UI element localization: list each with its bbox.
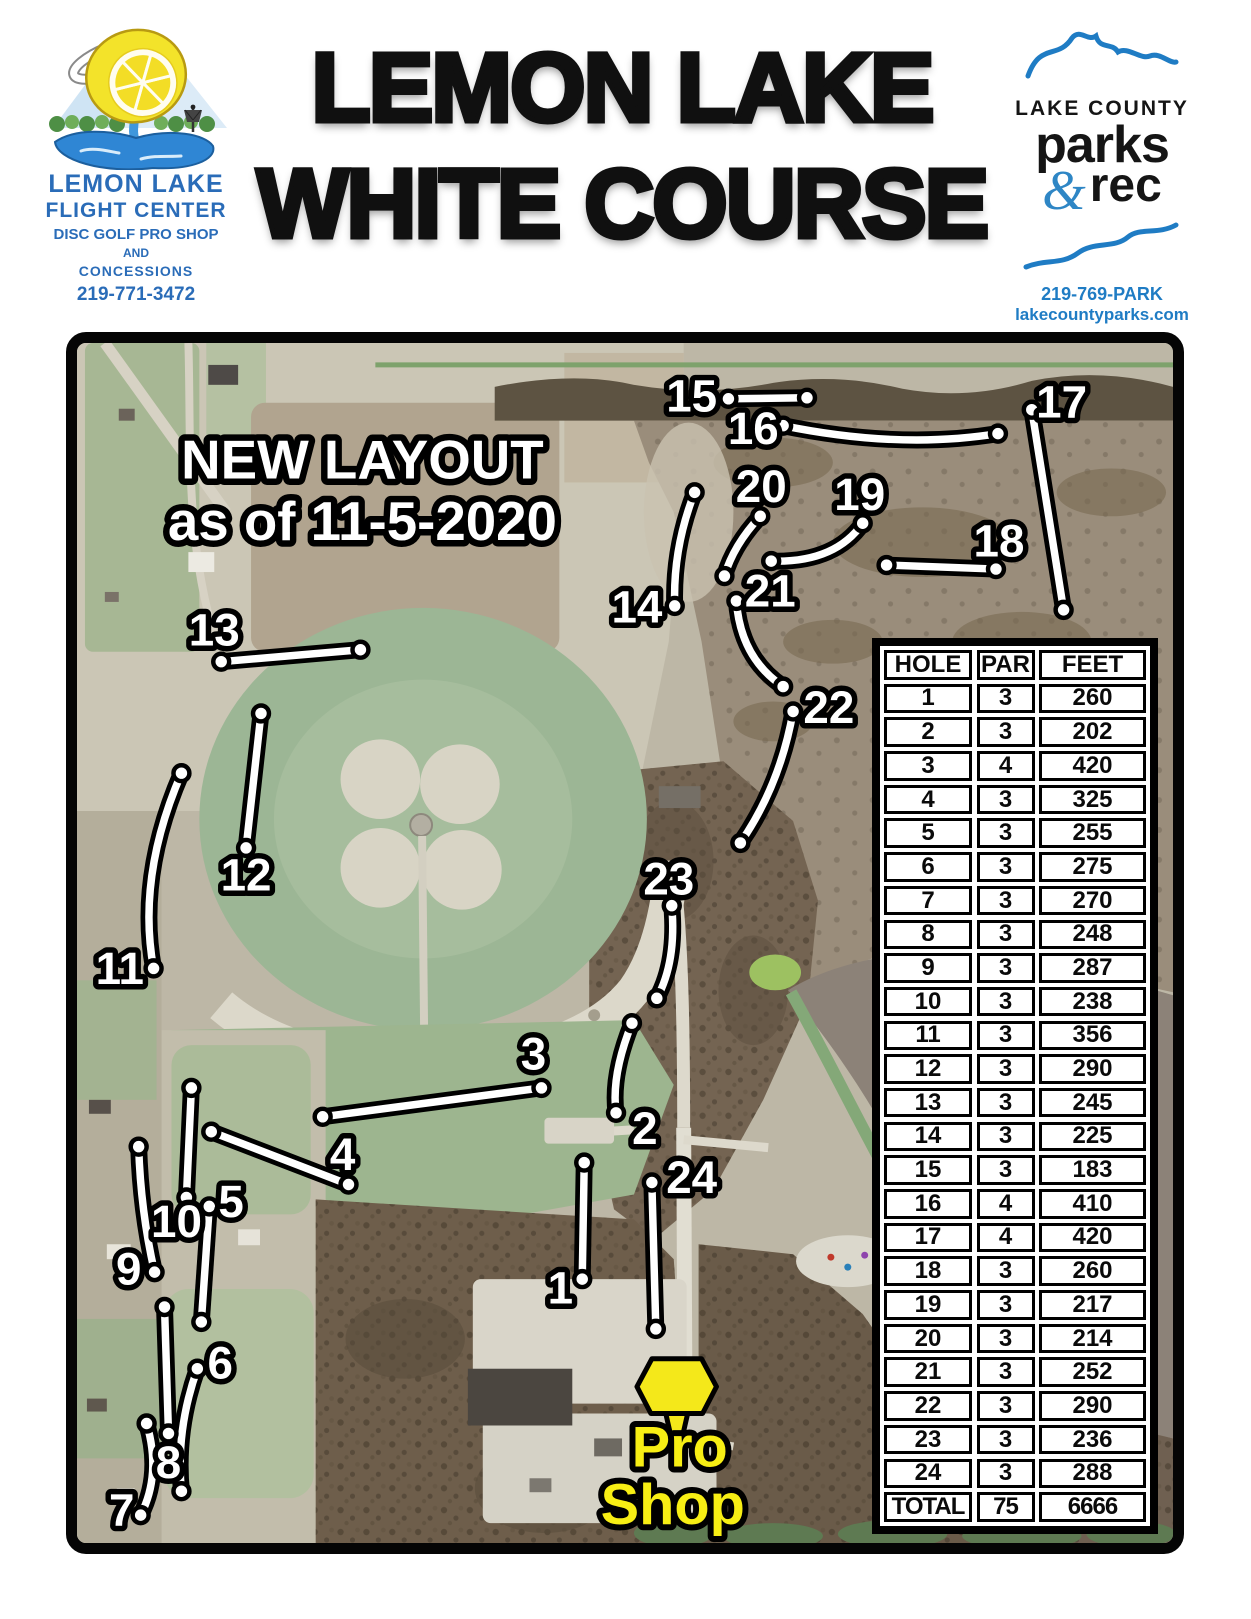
hole-11-label: 11 [96, 943, 144, 994]
score-cell: 15 [884, 1155, 972, 1185]
flight-center-name-line1: LEMON LAKE [36, 170, 236, 199]
hole-18-label: 18 [974, 516, 1025, 567]
score-cell: 24 [884, 1459, 972, 1489]
score-cell: 255 [1039, 818, 1146, 848]
score-cell: 19 [884, 1290, 972, 1320]
hole-12-label: 12 [221, 849, 272, 900]
score-cell: 3 [977, 1122, 1035, 1152]
hole-24-endpoint [644, 1175, 660, 1191]
score-cell: 14 [884, 1122, 972, 1152]
score-cell: 4 [977, 751, 1035, 781]
hole-7-endpoint [139, 1416, 155, 1432]
score-cell: 20 [884, 1324, 972, 1354]
notice-line1: NEW LAYOUT [181, 428, 544, 490]
hole-3-endpoint [534, 1080, 550, 1096]
score-cell: 3 [977, 886, 1035, 916]
score-cell: 5 [884, 818, 972, 848]
score-cell: 260 [1039, 684, 1146, 714]
hole-5-endpoint [201, 1198, 217, 1214]
score-cell: 290 [1039, 1391, 1146, 1421]
hole-11-endpoint [146, 960, 162, 976]
score-cell: 3 [977, 717, 1035, 747]
score-cell: 248 [1039, 920, 1146, 950]
score-header-cell: PAR [977, 650, 1035, 680]
hole-1-endpoint [576, 1155, 592, 1171]
county-outline-top-icon [1022, 18, 1182, 90]
score-cell: 3 [884, 751, 972, 781]
score-cell: 202 [1039, 717, 1146, 747]
score-cell: 238 [1039, 987, 1146, 1017]
parks-rec-phone: 219-769-PARK [1012, 284, 1192, 305]
score-total-cell: TOTAL [884, 1492, 972, 1522]
hole-4-label: 4 [330, 1129, 356, 1180]
score-cell: 8 [884, 920, 972, 950]
score-cell: 22 [884, 1391, 972, 1421]
score-total-cell: 75 [977, 1492, 1035, 1522]
hole-1-label: 1 [548, 1263, 573, 1314]
score-cell: 3 [977, 1290, 1035, 1320]
score-cell: 4 [977, 1189, 1035, 1219]
score-cell: 11 [884, 1021, 972, 1051]
hole-14-endpoint [687, 484, 703, 500]
score-cell: 3 [977, 1324, 1035, 1354]
score-cell: 2 [884, 717, 972, 747]
hole-2-label: 2 [632, 1103, 657, 1154]
hole-20-endpoint [716, 568, 732, 584]
score-cell: 3 [977, 1054, 1035, 1084]
score-cell: 245 [1039, 1088, 1146, 1118]
score-cell: 288 [1039, 1459, 1146, 1489]
score-cell: 420 [1039, 1223, 1146, 1253]
hole-17-endpoint [1056, 602, 1072, 618]
course-map: 123456789101112131415161718192021222324 … [66, 332, 1184, 1554]
score-cell: 3 [977, 1391, 1035, 1421]
hole-8-label: 8 [156, 1437, 181, 1488]
hole-6-label: 6 [207, 1337, 232, 1388]
score-cell: 356 [1039, 1021, 1146, 1051]
hole-24-label: 24 [666, 1152, 717, 1203]
score-cell: 270 [1039, 886, 1146, 916]
score-cell: 287 [1039, 953, 1146, 983]
pro-shop-label-line2: Shop [601, 1473, 745, 1537]
parks-rec-website: lakecountyparks.com [1012, 305, 1192, 325]
lemon-lake-logo-art [41, 10, 231, 170]
layout-notice: NEW LAYOUT as of 11-5-2020 [168, 428, 557, 552]
score-cell: 4 [977, 1223, 1035, 1253]
hole-8-endpoint [157, 1299, 173, 1315]
hole-13-endpoint [213, 654, 229, 670]
score-cell: 260 [1039, 1256, 1146, 1286]
parks-rec-logo: LAKE COUNTY parks &rec 219-769-PARK lake… [1012, 18, 1192, 325]
score-cell: 3 [977, 1021, 1035, 1051]
hole-4-endpoint [203, 1124, 219, 1140]
hole-21-endpoint [728, 593, 744, 609]
hole-14-label: 14 [611, 581, 662, 632]
score-cell: 3 [977, 818, 1035, 848]
notice-line2: as of 11-5-2020 [168, 490, 557, 552]
hole-2-endpoint [624, 1015, 640, 1031]
hole-10-endpoint [183, 1080, 199, 1096]
score-cell: 3 [977, 852, 1035, 882]
hole-21-label: 21 [745, 565, 796, 616]
flight-center-subtitle1: DISC GOLF PRO SHOP [36, 226, 236, 243]
poster-title: LEMON LAKE WHITE COURSE [222, 30, 1022, 263]
hole-5-label: 5 [218, 1176, 243, 1227]
hole-3-endpoint [315, 1109, 331, 1125]
hole-7-endpoint [133, 1507, 149, 1523]
hole-22-label: 22 [803, 682, 854, 733]
hole-7-label: 7 [109, 1485, 134, 1536]
score-cell: 3 [977, 1256, 1035, 1286]
hole-19-label: 19 [834, 469, 885, 520]
lake-icon [55, 132, 213, 170]
hole-15-label: 15 [666, 370, 717, 421]
score-cell: 17 [884, 1223, 972, 1253]
pro-shop-label-line1: Pro [632, 1415, 728, 1479]
score-table: HOLEPARFEET13260232023442043325532556327… [872, 638, 1158, 1534]
hole-14-endpoint [667, 598, 683, 614]
hole-24-endpoint [648, 1321, 664, 1337]
flight-center-logo: LEMON LAKE FLIGHT CENTER DISC GOLF PRO S… [36, 10, 236, 306]
hole-9-endpoint [131, 1139, 147, 1155]
pro-shop-basket-icon [637, 1359, 717, 1414]
score-cell: 325 [1039, 785, 1146, 815]
score-cell: 21 [884, 1357, 972, 1387]
hole-18-endpoint [879, 557, 895, 573]
hole-16-endpoint [990, 426, 1006, 442]
score-cell: 410 [1039, 1189, 1146, 1219]
score-cell: 16 [884, 1189, 972, 1219]
hole-20-label: 20 [736, 461, 787, 512]
hole-9-label: 9 [116, 1244, 141, 1295]
hole-22-endpoint [732, 835, 748, 851]
score-cell: 252 [1039, 1357, 1146, 1387]
score-cell: 9 [884, 953, 972, 983]
hole-3-label: 3 [521, 1029, 546, 1080]
score-cell: 13 [884, 1088, 972, 1118]
score-cell: 23 [884, 1425, 972, 1455]
score-cell: 217 [1039, 1290, 1146, 1320]
score-cell: 275 [1039, 852, 1146, 882]
score-cell: 214 [1039, 1324, 1146, 1354]
score-cell: 3 [977, 1425, 1035, 1455]
hole-15-endpoint [799, 390, 815, 406]
flight-center-name-line2: FLIGHT CENTER [36, 199, 236, 223]
score-cell: 10 [884, 987, 972, 1017]
score-total-cell: 6666 [1039, 1492, 1146, 1522]
hole-13-label: 13 [189, 604, 240, 655]
score-cell: 3 [977, 1088, 1035, 1118]
score-header-cell: FEET [1039, 650, 1146, 680]
score-cell: 3 [977, 1459, 1035, 1489]
score-cell: 7 [884, 886, 972, 916]
score-cell: 3 [977, 785, 1035, 815]
score-cell: 236 [1039, 1425, 1146, 1455]
hole-1-endpoint [574, 1271, 590, 1287]
parks-rec-rec: rec [1090, 159, 1162, 212]
course-poster: LEMON LAKE FLIGHT CENTER DISC GOLF PRO S… [0, 0, 1251, 1619]
hole-16-label: 16 [728, 403, 779, 454]
ballfields [199, 608, 647, 1030]
score-header-cell: HOLE [884, 650, 972, 680]
hole-23-label: 23 [643, 853, 694, 904]
score-cell: 12 [884, 1054, 972, 1084]
score-cell: 3 [977, 684, 1035, 714]
score-cell: 420 [1039, 751, 1146, 781]
score-cell: 1 [884, 684, 972, 714]
score-cell: 183 [1039, 1155, 1146, 1185]
score-cell: 3 [977, 987, 1035, 1017]
hole-21-endpoint [775, 679, 791, 695]
county-outline-bottom-icon [1022, 217, 1182, 275]
score-cell: 290 [1039, 1054, 1146, 1084]
score-cell: 3 [977, 920, 1035, 950]
score-cell: 4 [884, 785, 972, 815]
hole-5-endpoint [193, 1314, 209, 1330]
score-cell: 18 [884, 1256, 972, 1286]
score-cell: 3 [977, 953, 1035, 983]
title-line1: LEMON LAKE [222, 30, 1022, 146]
hole-13-endpoint [352, 642, 368, 658]
score-cell: 6 [884, 852, 972, 882]
score-cell: 3 [977, 1357, 1035, 1387]
hole-23-endpoint [649, 990, 665, 1006]
hole-2-endpoint [608, 1105, 624, 1121]
score-cell: 3 [977, 1155, 1035, 1185]
parks-rec-ampersand: & [1042, 160, 1086, 222]
title-line2: WHITE COURSE [222, 146, 1022, 262]
hole-12-endpoint [253, 705, 269, 721]
flight-center-subtitle3: CONCESSIONS [36, 263, 236, 279]
hole-22-endpoint [785, 703, 801, 719]
flight-center-subtitle2: AND [36, 246, 236, 260]
hole-9-endpoint [147, 1264, 163, 1280]
score-cell: 225 [1039, 1122, 1146, 1152]
hole-11-endpoint [173, 765, 189, 781]
hole-17-label: 17 [1036, 376, 1087, 427]
flight-center-phone: 219-771-3472 [36, 284, 236, 306]
hole-10-label: 10 [151, 1196, 202, 1247]
hole-6-endpoint [189, 1361, 205, 1377]
